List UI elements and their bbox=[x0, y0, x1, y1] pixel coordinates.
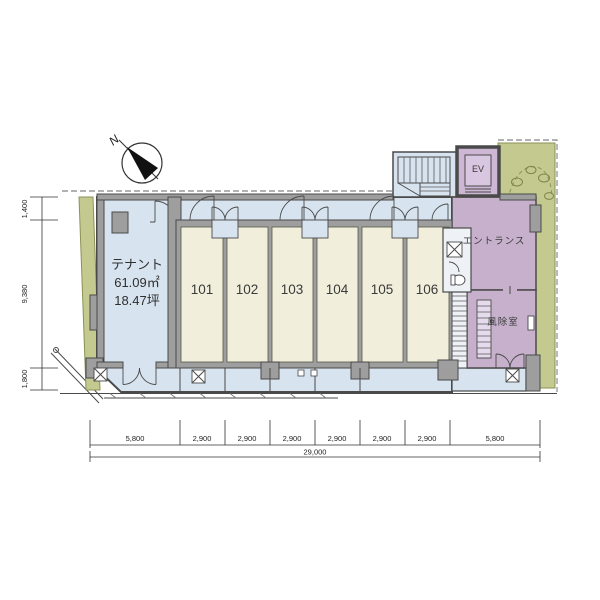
wall-stub-s3 bbox=[438, 360, 458, 380]
room-101-label: 101 bbox=[191, 282, 214, 297]
dim-seg-3: 2,900 bbox=[238, 434, 257, 443]
tenant-area-tsubo: 18.47坪 bbox=[114, 293, 160, 308]
tenant-west-wall bbox=[97, 200, 104, 368]
north-wall bbox=[97, 194, 393, 200]
dim-seg-2: 2,900 bbox=[193, 434, 212, 443]
dim-seg-6: 2,900 bbox=[373, 434, 392, 443]
elevator-label: EV bbox=[472, 164, 484, 174]
dim-total: 29,000 bbox=[304, 448, 327, 457]
pipe-icon-2 bbox=[311, 370, 317, 376]
dim-seg-7: 2,900 bbox=[418, 434, 437, 443]
floor-plan-page: EV テナント 61.09㎡ 18.47坪 bbox=[0, 0, 600, 600]
entrance-area bbox=[452, 197, 541, 391]
room-105-label: 105 bbox=[371, 282, 394, 297]
sidewalk-hatches bbox=[110, 394, 326, 399]
tenant-name: テナント bbox=[111, 257, 163, 272]
room-106-label: 106 bbox=[416, 282, 439, 297]
wall-niche bbox=[528, 316, 534, 330]
entrance-label: エントランス bbox=[463, 236, 526, 247]
tenant-area-m2: 61.09㎡ bbox=[114, 275, 160, 290]
north-wall-east bbox=[500, 194, 536, 200]
dimension-bottom: 5,800 2,900 2,900 2,900 2,900 2,900 2,90… bbox=[90, 420, 540, 462]
dim-left-2: 9,380 bbox=[20, 285, 29, 304]
dimension-left: 1,400 9,380 1,800 bbox=[20, 197, 58, 390]
floor-plan-canvas: EV テナント 61.09㎡ 18.47坪 bbox=[0, 0, 600, 600]
stair-hall bbox=[393, 152, 458, 197]
toilet-tank bbox=[451, 275, 455, 285]
windbreak-label: 風除室 bbox=[487, 316, 519, 328]
room-103-label: 103 bbox=[281, 282, 304, 297]
pipe-icon-1 bbox=[298, 370, 304, 376]
wall-stub-southeast bbox=[526, 355, 540, 391]
tenant-south-wall-l bbox=[97, 362, 123, 368]
dim-seg-8: 5,800 bbox=[486, 434, 505, 443]
room-104-label: 104 bbox=[326, 282, 349, 297]
elevator: EV bbox=[457, 147, 499, 196]
wall-stub-w bbox=[90, 295, 97, 330]
dim-seg-5: 2,900 bbox=[328, 434, 347, 443]
windbreak-steps bbox=[477, 300, 491, 358]
north-compass: N bbox=[106, 132, 162, 183]
dim-left-3: 1,800 bbox=[20, 370, 29, 389]
wall-stub-entrance bbox=[530, 205, 541, 232]
wall-stub-nw bbox=[112, 212, 128, 233]
dim-left-1: 1,400 bbox=[20, 200, 29, 219]
room-102-label: 102 bbox=[236, 282, 259, 297]
rooms-block: 101 102 103 104 105 106 bbox=[168, 196, 458, 380]
dim-seg-1: 5,800 bbox=[126, 434, 145, 443]
dim-seg-4: 2,900 bbox=[283, 434, 302, 443]
